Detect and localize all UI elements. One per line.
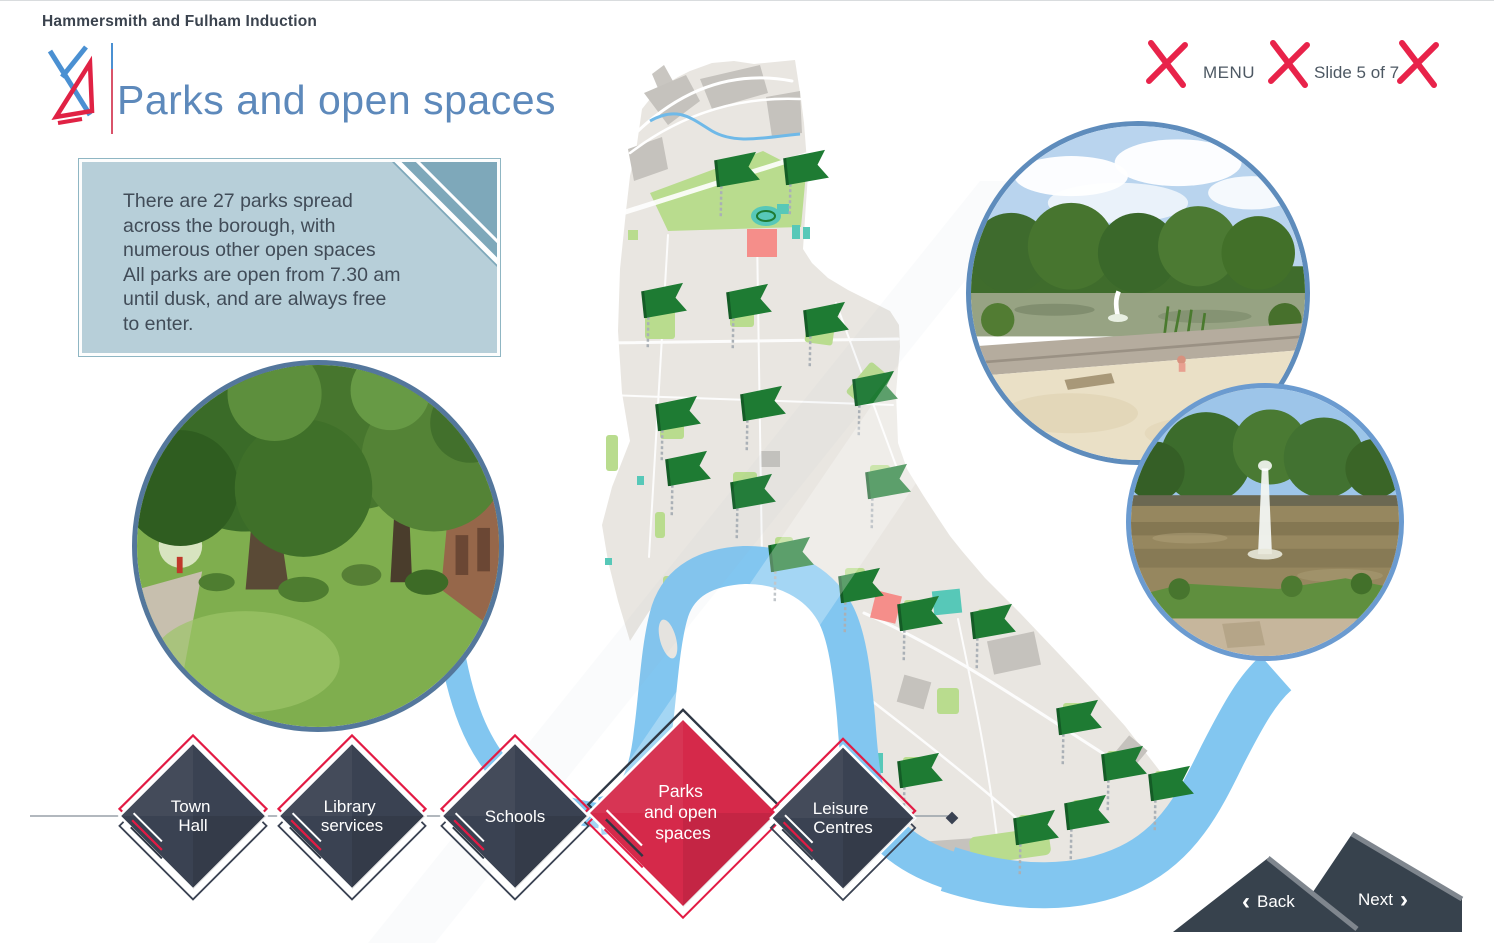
info-text: There are 27 parks spread across the bor… xyxy=(123,189,400,336)
info-box: There are 27 parks spread across the bor… xyxy=(78,158,501,357)
nav-item-library-services[interactable]: Library services xyxy=(270,735,434,899)
nav-label: Library xyxy=(324,797,376,816)
section-nav: Town Hall Library services xyxy=(20,701,980,941)
slide-indicator: Slide 5 of 7 xyxy=(1314,63,1399,83)
nav-item-parks-open-spaces[interactable]: Parks and open spaces xyxy=(579,710,787,918)
back-next-mountains xyxy=(1160,819,1480,943)
svg-text:Library services: Library services xyxy=(321,797,383,835)
pond-fountain-photo xyxy=(1126,383,1404,661)
hf-x-icon xyxy=(1394,39,1442,91)
nav-item-leisure-centres[interactable]: Leisure Centres xyxy=(762,739,923,900)
chevron-right-icon: › xyxy=(1400,891,1408,908)
nav-label: Schools xyxy=(485,807,545,826)
park-flag-icon xyxy=(783,150,832,216)
app-title: Hammersmith and Fulham Induction xyxy=(42,13,317,31)
chevron-left-icon: ‹ xyxy=(1242,893,1250,910)
nav-label: services xyxy=(321,816,383,835)
nav-label: Parks xyxy=(658,781,703,801)
nav-label: Town xyxy=(171,797,211,816)
svg-text:Leisure Centres: Leisure Centres xyxy=(813,799,874,837)
nav-label: Hall xyxy=(178,816,207,835)
nav-end-diamond xyxy=(946,812,959,825)
hf-logo-icon xyxy=(38,37,118,139)
nav-label: Centres xyxy=(813,818,873,837)
nav-label: spaces xyxy=(655,823,711,843)
nav-item-schools[interactable]: Schools xyxy=(433,735,597,899)
info-box-corner-decoration xyxy=(392,162,497,267)
back-button[interactable]: ‹ Back xyxy=(1242,892,1295,912)
nav-item-town-hall[interactable]: Town Hall xyxy=(111,735,275,899)
nav-label: Leisure xyxy=(813,799,869,818)
park-trees-photo xyxy=(132,360,504,732)
hf-x-icon xyxy=(1143,39,1191,91)
menu-button[interactable]: MENU xyxy=(1203,63,1255,83)
nav-label: and open xyxy=(644,802,717,822)
svg-text:Schools: Schools xyxy=(485,807,545,826)
next-button-label: Next xyxy=(1358,890,1393,910)
back-button-label: Back xyxy=(1257,892,1295,912)
page-title: Parks and open spaces xyxy=(117,77,556,124)
hf-x-icon xyxy=(1265,39,1313,91)
slide-canvas: Town Hall Library services xyxy=(0,0,1494,943)
next-button[interactable]: Next › xyxy=(1358,890,1408,910)
